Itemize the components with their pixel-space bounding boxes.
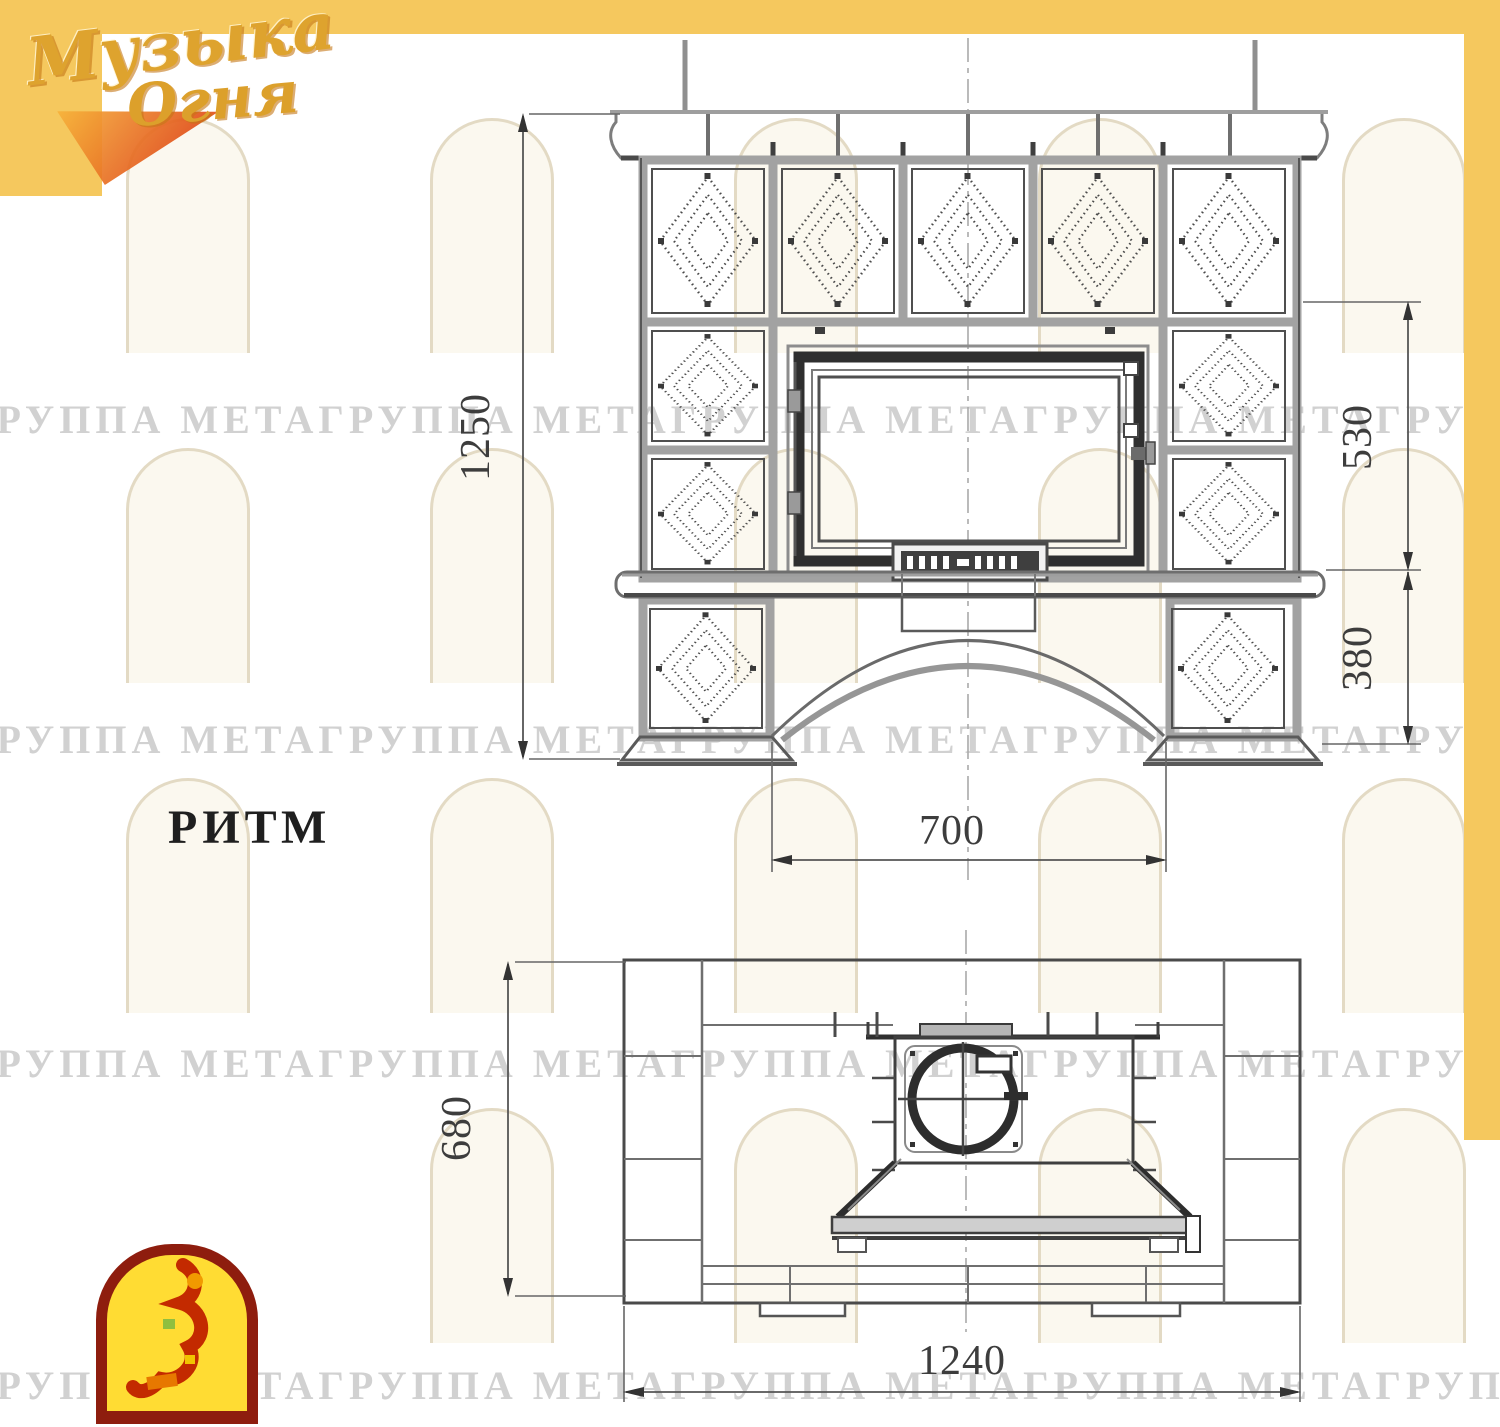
firebox-door — [788, 346, 1155, 572]
dim-label-530: 530 — [1335, 404, 1381, 470]
anchor-mark — [1105, 327, 1115, 334]
dim-label-680: 680 — [434, 1095, 480, 1161]
dim-label-1250: 1250 — [453, 393, 499, 481]
page: ГРУППА МЕТАГРУППА МЕТАГРУППА МЕТАГРУППА … — [0, 0, 1500, 1427]
mantel-shelf — [616, 572, 1324, 597]
hearth-front-plate — [832, 1217, 1196, 1233]
plan-foot-tab — [760, 1303, 845, 1316]
technical-drawing: 1250 530 380 — [0, 0, 1500, 1427]
hinge-icon — [788, 390, 801, 412]
latch-plate — [1124, 424, 1138, 437]
dim-width: 1240 — [623, 1306, 1301, 1402]
door-handle-knob — [1146, 442, 1155, 464]
dim-overall-height: 1250 — [453, 113, 620, 760]
plan-foot-tab — [1092, 1303, 1180, 1316]
meta-arch-logo-icon — [96, 1244, 258, 1424]
chimney-lines — [685, 40, 1255, 112]
model-name-label: РИТМ — [168, 800, 331, 855]
dim-label-380: 380 — [1335, 625, 1381, 691]
flue-notch — [977, 1056, 1011, 1072]
dim-label-1240: 1240 — [918, 1338, 1006, 1384]
dim-firebox-height: 530 — [1303, 301, 1421, 571]
front-elevation: 1250 530 380 — [453, 38, 1421, 880]
dim-depth: 680 — [434, 961, 626, 1297]
plan-view: 680 1240 — [434, 930, 1301, 1402]
flame-figure-icon — [107, 1255, 247, 1410]
dim-label-700: 700 — [919, 808, 985, 854]
cornice — [610, 112, 1328, 162]
dim-base-height: 380 — [1322, 571, 1421, 745]
hinge-icon — [788, 492, 801, 514]
dim-opening-width: 700 — [771, 742, 1167, 872]
tile-frames — [643, 160, 1297, 737]
plan-firebox-insert — [832, 1012, 1200, 1252]
latch-plate — [1124, 362, 1138, 375]
anchor-mark — [815, 327, 825, 334]
door-glass — [819, 377, 1119, 541]
